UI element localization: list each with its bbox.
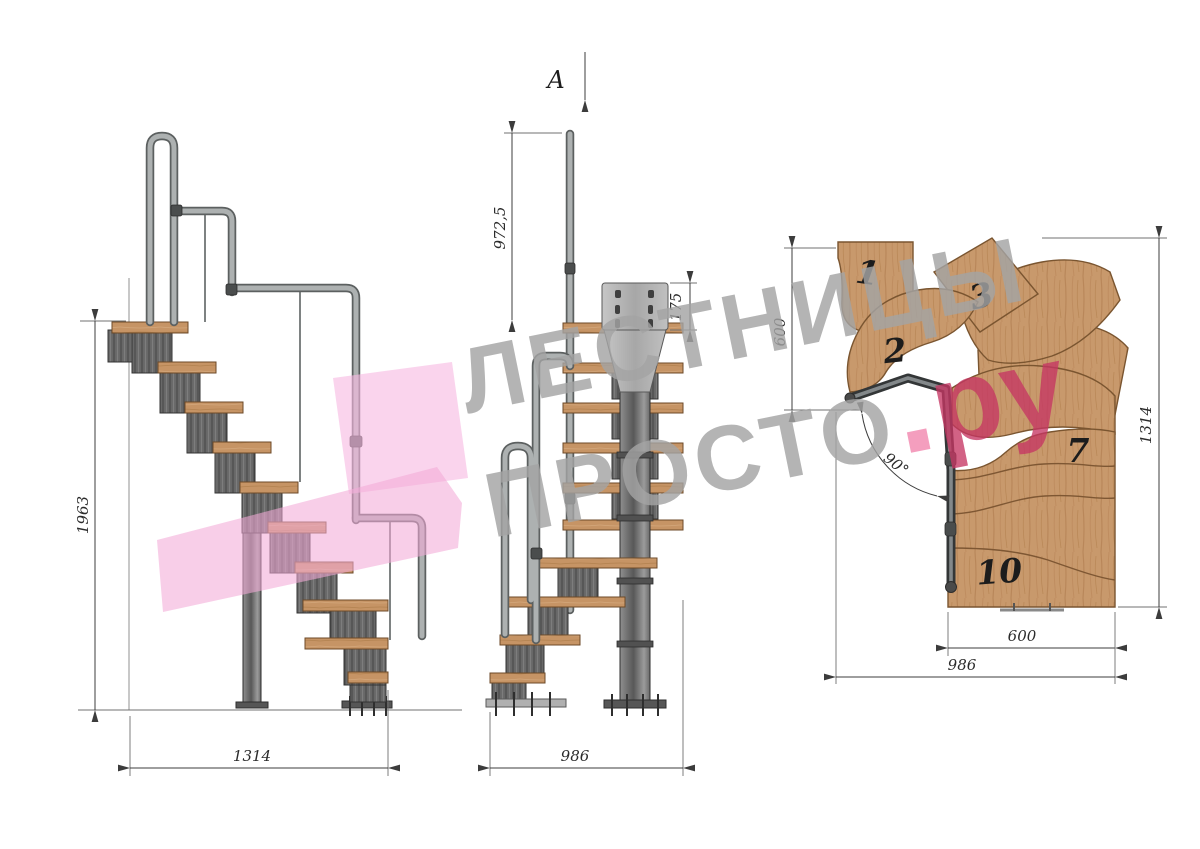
plan-view: 1 2 3 7 10 600 90° 1314 600: [771, 238, 1167, 684]
dim-post-height-value: 972,5: [491, 207, 509, 250]
dim-side-height-value: 1963: [74, 496, 92, 534]
dim-side-height: 1963: [74, 321, 126, 710]
dim-post-height: 972,5: [491, 133, 562, 320]
dim-plan-flight-width-value: 600: [1008, 627, 1037, 645]
column-base-flange: [604, 700, 666, 708]
front-view: A 972,5: [486, 52, 697, 776]
dim-plan-angle-value: 90°: [880, 449, 912, 480]
tread-label-7: 7: [1067, 431, 1090, 470]
dim-plan-entry-depth-value: 600: [771, 317, 789, 346]
dim-front-length-value: 986: [561, 747, 590, 765]
dim-side-length-value: 1314: [233, 747, 271, 765]
dim-plan-overall-width-value: 986: [948, 656, 977, 674]
dim-plan-angle: 90°: [862, 414, 937, 496]
wall-bracket: [108, 330, 132, 362]
technical-drawing-page: 1963 1314 A 972,5: [0, 0, 1200, 849]
side-column-flange: [236, 702, 268, 708]
section-label: A: [545, 66, 564, 94]
dim-plan-side-length-value: 1314: [1137, 406, 1155, 444]
section-arrow: A: [545, 52, 585, 100]
dim-plan-flight-width: 600: [948, 612, 1115, 656]
tread-label-2: 2: [880, 330, 908, 371]
front-base-plate: [486, 699, 566, 707]
dim-plate-height-value: 175: [667, 293, 685, 322]
staircase-drawing: 1963 1314 A 972,5: [0, 0, 1200, 849]
plan-straight-flight: [948, 429, 1115, 607]
tread-label-10: 10: [975, 550, 1024, 592]
mounting-plate: [602, 283, 668, 330]
